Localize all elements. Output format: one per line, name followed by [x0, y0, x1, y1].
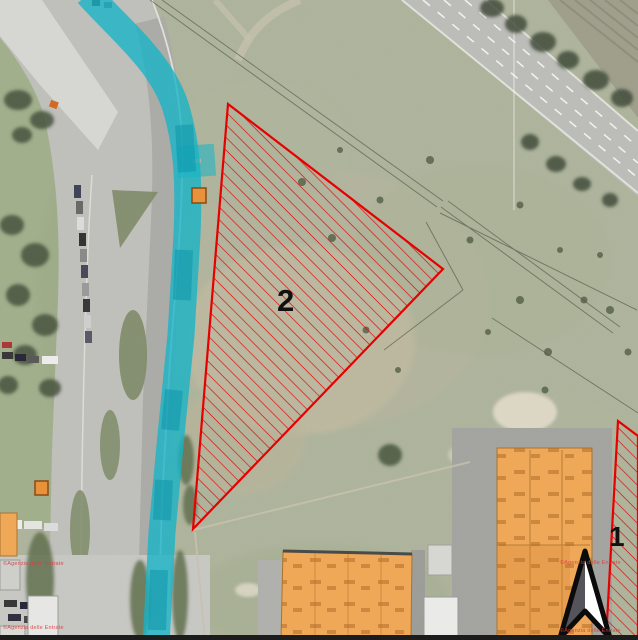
building-left-edge [0, 513, 17, 556]
watermark-text: ©Agenzia delle Entrate [3, 625, 64, 631]
parcel-1-label: 1 [609, 523, 625, 551]
watermark-text: ©Agenzia delle Entrate [560, 560, 621, 566]
orange-marker-canal [192, 188, 206, 203]
watermark-text: ©Agenzia delle Entrate [560, 628, 621, 634]
orange-marker-roadside [35, 481, 48, 495]
aerial-map-canvas [0, 0, 638, 640]
map-viewport[interactable]: 2 1 ©Agenzia delle Entrate ©Agenzia dell… [0, 0, 638, 640]
parcel-2-label: 2 [277, 285, 294, 316]
map-frame-bottom-bar [0, 635, 638, 640]
warehouse-center [281, 551, 412, 640]
watermark-text: ©Agenzia delle Entrate [3, 561, 64, 567]
